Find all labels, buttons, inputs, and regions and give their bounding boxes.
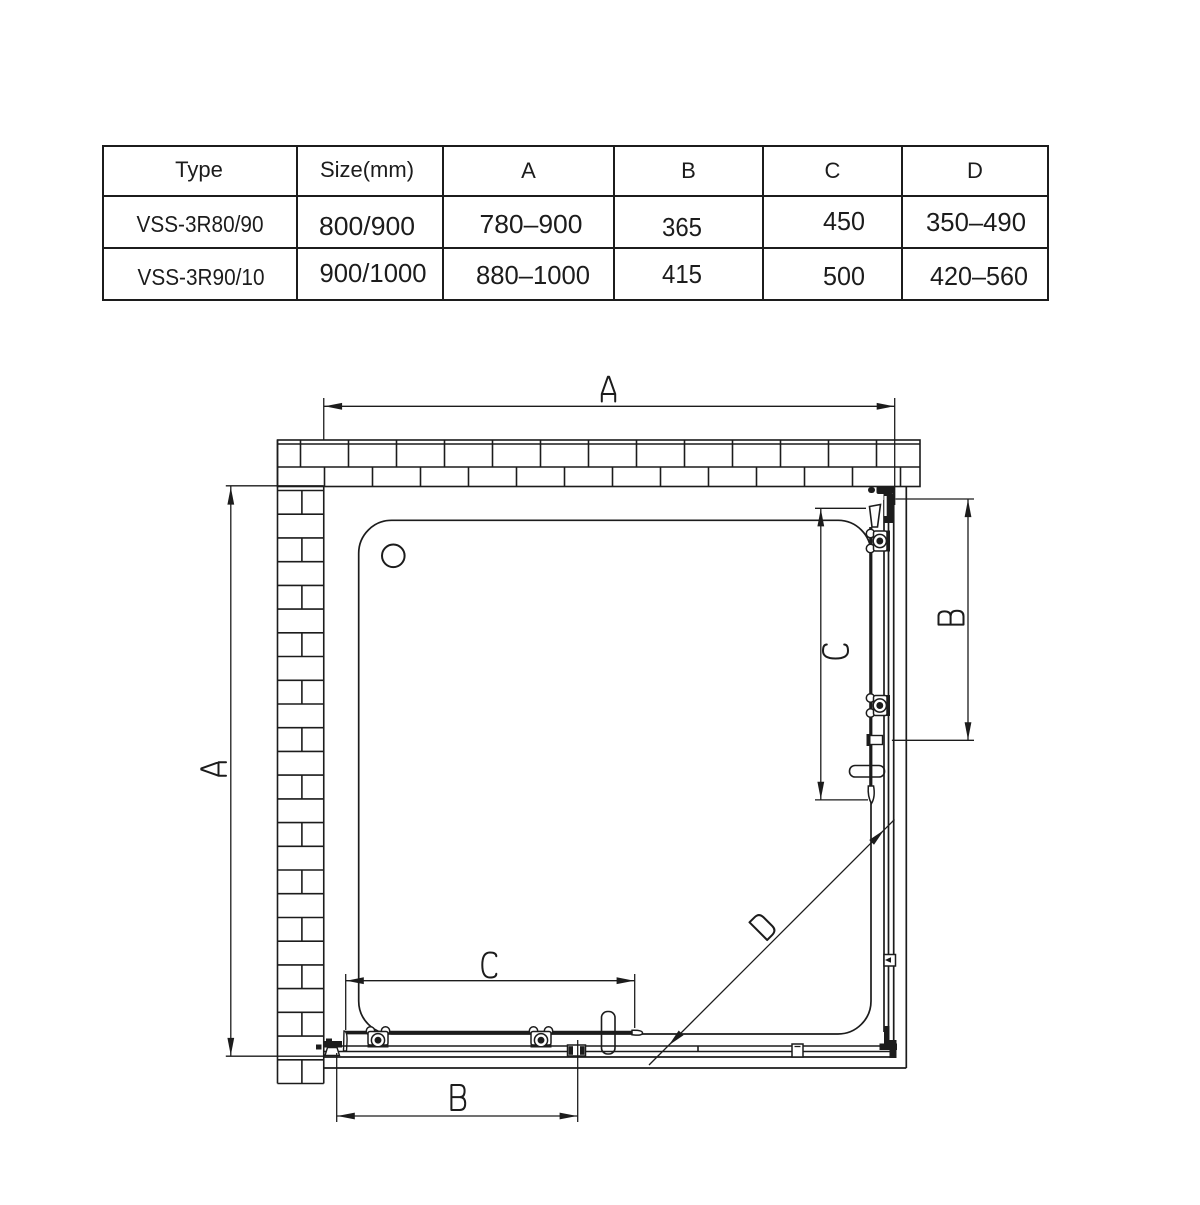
svg-text:Size(mm): Size(mm): [320, 157, 414, 182]
svg-text:B: B: [681, 158, 696, 183]
svg-text:D: D: [967, 158, 983, 183]
svg-text:420–560: 420–560: [930, 261, 1028, 291]
svg-text:500: 500: [823, 261, 865, 291]
svg-text:900/1000: 900/1000: [320, 258, 427, 288]
svg-text:C: C: [825, 158, 841, 183]
svg-text:350–490: 350–490: [926, 207, 1026, 237]
svg-text:880–1000: 880–1000: [476, 260, 590, 290]
svg-text:VSS-3R80/90: VSS-3R80/90: [137, 211, 264, 237]
svg-text:A: A: [521, 158, 536, 183]
svg-text:365: 365: [662, 212, 702, 242]
svg-text:450: 450: [823, 206, 865, 236]
svg-text:Type: Type: [175, 157, 223, 182]
svg-text:VSS-3R90/10: VSS-3R90/10: [138, 264, 265, 290]
svg-text:415: 415: [662, 259, 702, 289]
svg-text:780–900: 780–900: [480, 209, 583, 239]
svg-text:800/900: 800/900: [319, 211, 415, 241]
